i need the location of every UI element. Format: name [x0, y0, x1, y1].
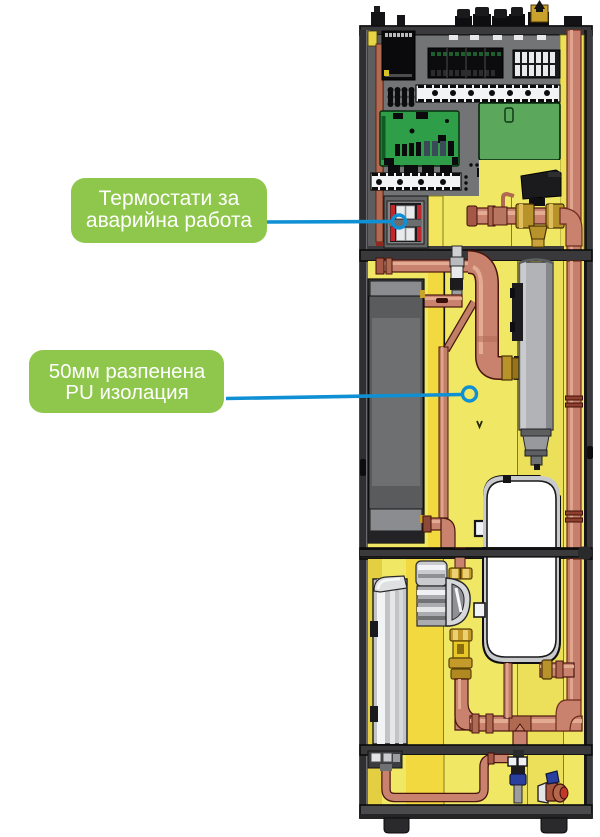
svg-text:Термостати за: Термостати за: [99, 187, 240, 210]
svg-text:50мм разпенена: 50мм разпенена: [49, 360, 206, 383]
svg-text:аварийна работа: аварийна работа: [86, 209, 253, 232]
svg-text:PU изолация: PU изолация: [65, 381, 188, 404]
